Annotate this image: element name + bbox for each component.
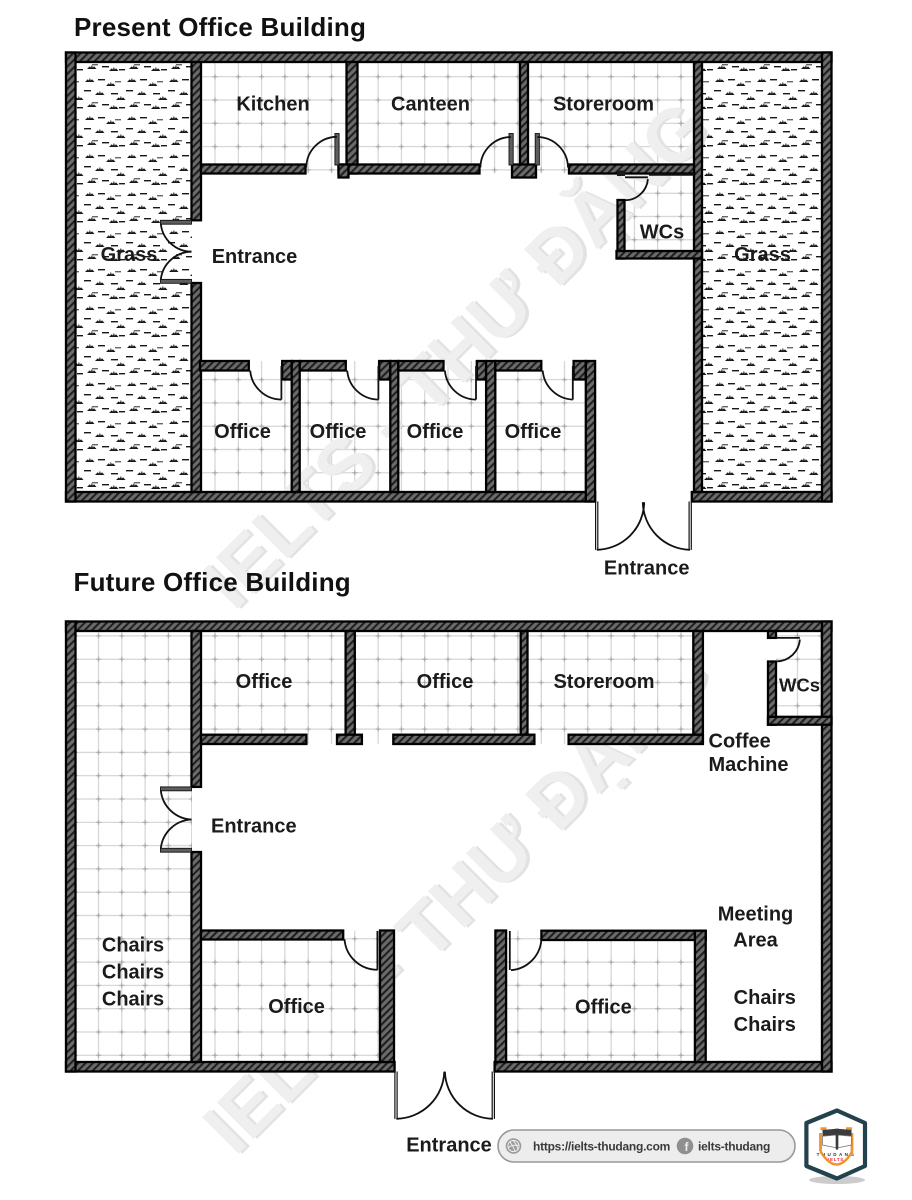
svg-text:Grass: Grass: [734, 244, 791, 266]
svg-text:Entrance: Entrance: [211, 816, 297, 838]
svg-text:Office: Office: [417, 671, 474, 693]
svg-text:Entrance: Entrance: [604, 558, 690, 580]
svg-text:Entrance: Entrance: [212, 246, 298, 268]
svg-text:Chairs: Chairs: [102, 962, 164, 984]
svg-text:https://ielts-thudang.com: https://ielts-thudang.com: [533, 1140, 670, 1154]
svg-text:WCs: WCs: [779, 675, 820, 696]
svg-text:Storeroom: Storeroom: [553, 671, 654, 693]
svg-text:Machine: Machine: [709, 754, 789, 776]
svg-text:Meeting: Meeting: [718, 904, 794, 926]
svg-text:Chairs: Chairs: [734, 987, 796, 1009]
svg-text:Office: Office: [310, 421, 367, 443]
svg-text:Chairs: Chairs: [734, 1014, 796, 1036]
svg-text:IELTS: IELTS: [828, 1157, 844, 1162]
svg-text:Future Office Building: Future Office Building: [74, 567, 351, 597]
svg-text:Office: Office: [214, 421, 271, 443]
svg-text:Grass: Grass: [101, 244, 158, 266]
svg-text:Storeroom: Storeroom: [553, 94, 654, 116]
svg-text:Kitchen: Kitchen: [236, 94, 309, 116]
svg-text:Present Office Building: Present Office Building: [74, 12, 366, 42]
svg-text:Entrance: Entrance: [406, 1135, 492, 1157]
svg-text:Office: Office: [407, 421, 464, 443]
svg-text:ielts-thudang: ielts-thudang: [698, 1140, 770, 1154]
svg-text:Chairs: Chairs: [102, 989, 164, 1011]
svg-text:Office: Office: [236, 671, 293, 693]
svg-text:Canteen: Canteen: [391, 94, 470, 116]
svg-text:Area: Area: [733, 930, 778, 952]
svg-text:Chairs: Chairs: [102, 935, 164, 957]
svg-text:Office: Office: [505, 421, 562, 443]
svg-text:Coffee: Coffee: [709, 731, 771, 753]
svg-text:WCs: WCs: [640, 222, 684, 244]
svg-text:Office: Office: [268, 996, 325, 1018]
svg-text:Office: Office: [575, 997, 632, 1019]
